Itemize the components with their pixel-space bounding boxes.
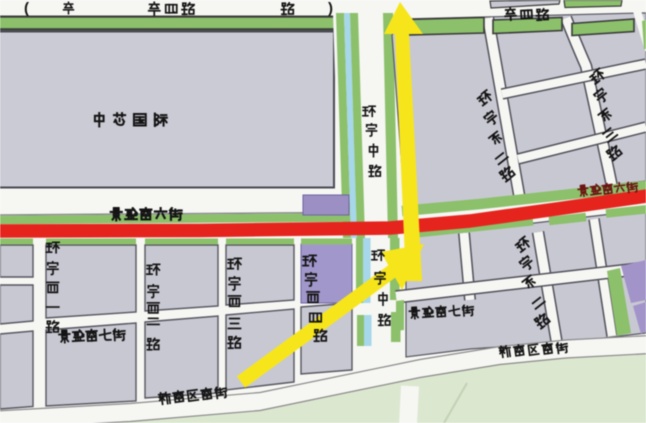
svg-text:(: ( (24, 0, 29, 17)
svg-text:): ) (328, 0, 333, 17)
